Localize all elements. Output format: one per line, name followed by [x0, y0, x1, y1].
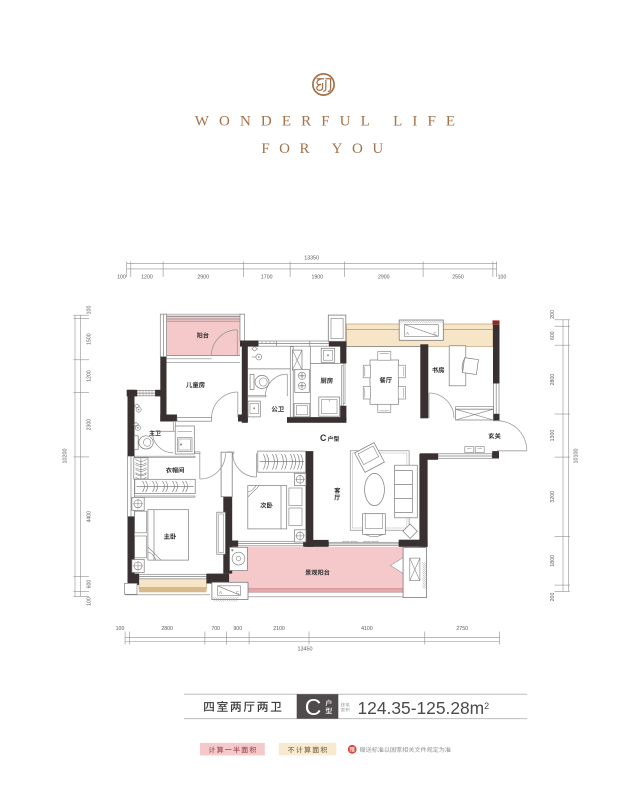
- svg-text:C: C: [305, 694, 322, 720]
- svg-text:A: A: [219, 590, 222, 595]
- svg-text:3200: 3200: [550, 491, 556, 503]
- svg-text:1500: 1500: [87, 333, 93, 345]
- svg-text:1200: 1200: [141, 275, 153, 281]
- svg-text:2900: 2900: [197, 275, 209, 281]
- svg-text:1700: 1700: [261, 275, 273, 281]
- svg-text:2900: 2900: [378, 275, 390, 281]
- svg-text:2800: 2800: [550, 374, 556, 386]
- svg-text:1300: 1300: [550, 430, 556, 442]
- svg-text:100: 100: [498, 275, 507, 281]
- svg-text:2750: 2750: [456, 626, 468, 632]
- svg-text:600: 600: [87, 580, 93, 589]
- svg-text:100: 100: [87, 306, 93, 315]
- svg-text:4100: 4100: [361, 626, 373, 632]
- svg-text:100: 100: [117, 275, 126, 281]
- svg-text:900: 900: [233, 626, 242, 632]
- svg-text:C: C: [433, 331, 436, 336]
- svg-text:C: C: [236, 590, 239, 595]
- svg-text:200: 200: [550, 310, 556, 319]
- svg-text:2300: 2300: [87, 419, 93, 431]
- svg-text:124.35-125.28m2: 124.35-125.28m2: [358, 698, 490, 718]
- svg-text:200: 200: [550, 593, 556, 602]
- svg-text:100: 100: [87, 597, 93, 606]
- svg-text:C: C: [320, 433, 327, 443]
- svg-text:100: 100: [116, 626, 125, 632]
- svg-text:700: 700: [211, 626, 220, 632]
- svg-text:2100: 2100: [273, 626, 285, 632]
- svg-text:WONDERFUL LIFE: WONDERFUL LIFE: [195, 114, 465, 130]
- svg-text:4400: 4400: [87, 511, 93, 523]
- svg-text:1800: 1800: [550, 555, 556, 567]
- svg-text:13350: 13350: [304, 255, 319, 261]
- svg-text:A: A: [406, 331, 409, 336]
- svg-text:10100: 10100: [574, 449, 580, 464]
- svg-text:13450: 13450: [298, 647, 313, 653]
- svg-text:10200: 10200: [63, 449, 69, 464]
- svg-text:1900: 1900: [312, 275, 324, 281]
- svg-text:600: 600: [550, 331, 556, 340]
- svg-text:2800: 2800: [161, 626, 173, 632]
- svg-text:2550: 2550: [452, 275, 464, 281]
- svg-text:FOR YOU: FOR YOU: [261, 141, 392, 157]
- svg-text:1200: 1200: [87, 370, 93, 382]
